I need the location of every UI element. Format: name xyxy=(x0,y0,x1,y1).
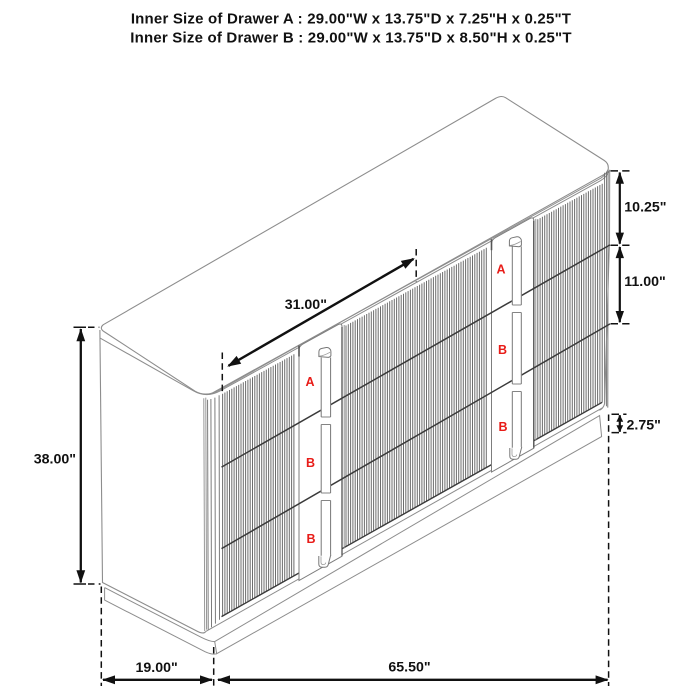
svg-text:Inner Size of Drawer B : 29.00: Inner Size of Drawer B : 29.00"W x 13.75… xyxy=(130,30,571,47)
svg-text:31.00": 31.00" xyxy=(285,297,327,313)
svg-text:B: B xyxy=(498,420,507,434)
svg-text:B: B xyxy=(306,456,315,470)
svg-text:65.50": 65.50" xyxy=(388,660,430,676)
svg-text:B: B xyxy=(498,343,507,357)
svg-text:Inner Size of Drawer A : 29.00: Inner Size of Drawer A : 29.00"W x 13.75… xyxy=(131,11,571,28)
svg-text:A: A xyxy=(305,375,314,389)
svg-text:38.00": 38.00" xyxy=(34,452,76,468)
svg-text:10.25": 10.25" xyxy=(624,200,666,216)
svg-text:2.75": 2.75" xyxy=(627,418,661,434)
svg-text:19.00": 19.00" xyxy=(135,660,177,676)
svg-text:A: A xyxy=(496,263,505,277)
svg-text:11.00": 11.00" xyxy=(624,274,665,290)
svg-text:B: B xyxy=(306,532,315,546)
